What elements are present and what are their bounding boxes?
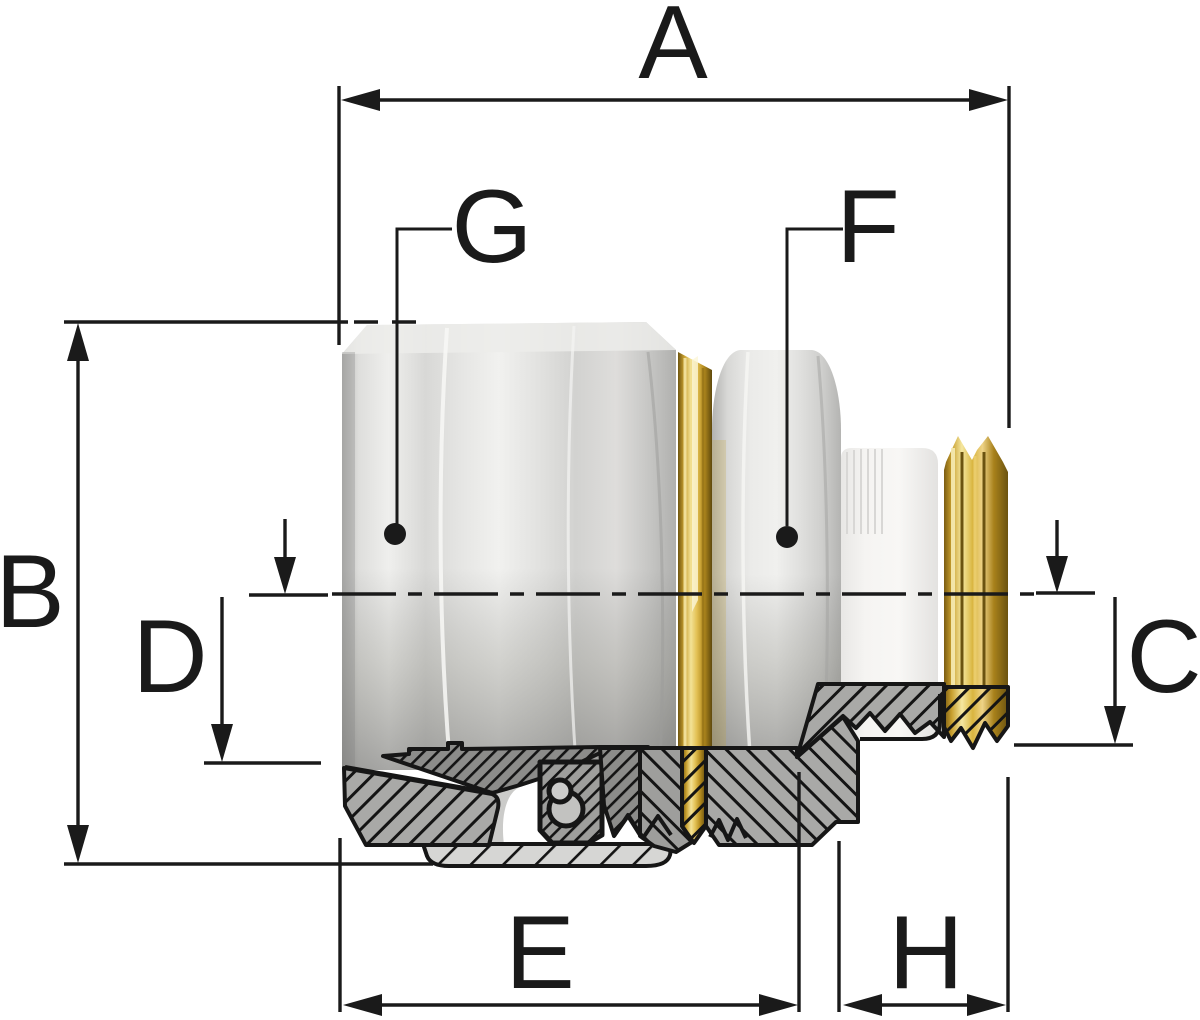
dim-label-g: G [452, 169, 533, 285]
nut-left-edge-shade [342, 352, 355, 767]
dim-label-d: D [132, 599, 207, 715]
dim-label-b: B [0, 534, 65, 650]
brass-ring-highlight [692, 356, 698, 612]
dim-label-f: F [836, 169, 900, 285]
canvas: A B C [0, 0, 1200, 1020]
dim-label-a: A [638, 0, 708, 101]
compression-nut-shade [342, 322, 676, 770]
leader-dot-f [776, 526, 798, 548]
dim-label-h: H [888, 895, 963, 1011]
technical-drawing: A B C [0, 0, 1200, 1020]
leader-dot-g [384, 523, 406, 545]
dim-label-c: C [1126, 599, 1200, 715]
dim-label-e: E [505, 895, 574, 1011]
clip-ball [549, 780, 571, 802]
